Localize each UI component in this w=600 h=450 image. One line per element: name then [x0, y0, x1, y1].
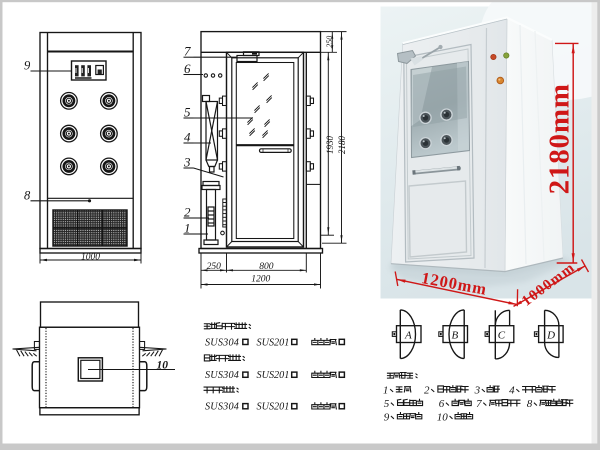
svg-text:SUS201: SUS201: [257, 402, 290, 413]
svg-text:1: 1: [184, 221, 191, 236]
svg-text:2180: 2180: [337, 136, 347, 155]
svg-text:SUS304: SUS304: [205, 402, 239, 413]
svg-text:6: 6: [184, 61, 191, 76]
svg-text:7: 7: [476, 398, 482, 410]
svg-text:9: 9: [24, 59, 31, 73]
svg-text:2: 2: [424, 384, 430, 396]
svg-text:SUS304: SUS304: [205, 337, 239, 348]
svg-text:8: 8: [24, 189, 31, 203]
svg-text:250: 250: [207, 262, 222, 272]
svg-text:1000: 1000: [81, 252, 100, 262]
svg-text:SUS201: SUS201: [257, 337, 290, 348]
svg-text:4: 4: [509, 384, 515, 396]
svg-text:1: 1: [383, 384, 389, 396]
svg-text:7: 7: [184, 44, 191, 59]
svg-text:3: 3: [474, 384, 481, 396]
svg-text:1200: 1200: [251, 275, 270, 285]
svg-text:C: C: [498, 330, 506, 342]
svg-text:250: 250: [325, 36, 334, 48]
svg-text:D: D: [546, 330, 555, 342]
svg-text:2: 2: [184, 205, 191, 220]
svg-text:4: 4: [184, 130, 191, 145]
svg-text:5: 5: [384, 398, 390, 410]
svg-text:B: B: [452, 330, 459, 342]
svg-text:SUS201: SUS201: [257, 370, 290, 381]
svg-text:8: 8: [527, 398, 533, 410]
svg-text:5: 5: [184, 105, 191, 120]
svg-text:10: 10: [437, 411, 449, 423]
svg-text:A: A: [404, 330, 412, 342]
svg-text:6: 6: [439, 398, 445, 410]
svg-text:800: 800: [259, 262, 274, 272]
svg-text:3: 3: [183, 155, 191, 170]
svg-text:1930: 1930: [325, 136, 335, 155]
svg-text:2180mm: 2180mm: [544, 83, 576, 194]
svg-text:SUS304: SUS304: [205, 370, 239, 381]
svg-text:9: 9: [384, 411, 390, 423]
